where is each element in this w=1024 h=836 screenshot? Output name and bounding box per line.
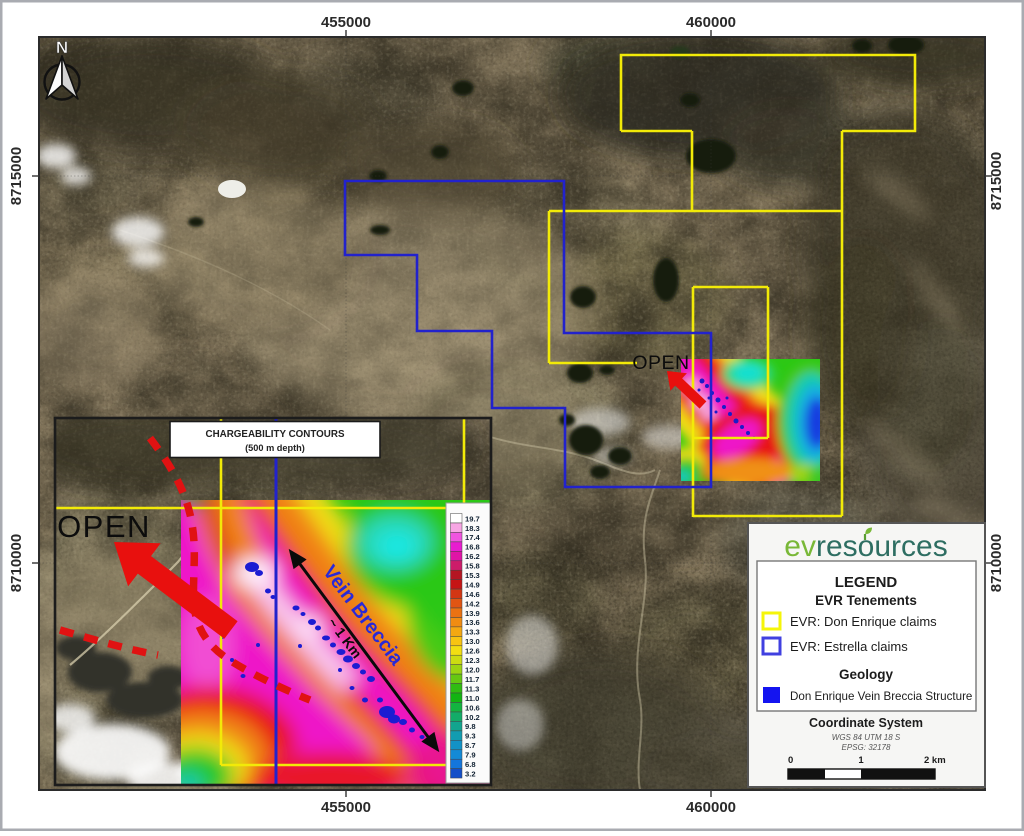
svg-text:CHARGEABILITY CONTOURS: CHARGEABILITY CONTOURS (206, 429, 345, 440)
svg-text:13.0: 13.0 (465, 637, 480, 646)
svg-text:13.3: 13.3 (465, 628, 480, 637)
svg-text:WGS 84 UTM 18 S: WGS 84 UTM 18 S (832, 733, 901, 742)
svg-text:14.2: 14.2 (465, 599, 480, 608)
svg-text:EVR Tenements: EVR Tenements (815, 593, 917, 608)
svg-text:10.6: 10.6 (465, 703, 480, 712)
svg-text:14.6: 14.6 (465, 590, 480, 599)
svg-text:8715000: 8715000 (8, 147, 25, 205)
svg-text:0: 0 (788, 755, 793, 766)
svg-text:N: N (56, 38, 68, 57)
svg-text:16.8: 16.8 (465, 543, 480, 552)
svg-text:(500 m depth): (500 m depth) (245, 443, 305, 453)
svg-text:14.9: 14.9 (465, 580, 480, 589)
svg-text:16.2: 16.2 (465, 552, 480, 561)
svg-text:11.3: 11.3 (465, 684, 479, 693)
svg-text:OPEN: OPEN (57, 509, 151, 544)
svg-text:455000: 455000 (321, 14, 371, 31)
svg-text:6.8: 6.8 (465, 760, 476, 769)
svg-text:Coordinate System: Coordinate System (809, 716, 923, 730)
svg-text:8.7: 8.7 (465, 741, 476, 750)
svg-text:9.8: 9.8 (465, 722, 476, 731)
svg-text:19.7: 19.7 (465, 514, 480, 523)
svg-text:EVR: Don Enrique claims: EVR: Don Enrique claims (790, 614, 937, 629)
svg-text:8710000: 8710000 (988, 534, 1005, 592)
svg-text:18.3: 18.3 (465, 524, 480, 533)
svg-text:2 km: 2 km (924, 755, 946, 766)
svg-text:12.3: 12.3 (465, 656, 480, 665)
svg-text:9.3: 9.3 (465, 732, 476, 741)
svg-text:OPEN: OPEN (632, 352, 689, 374)
svg-text:12.6: 12.6 (465, 647, 480, 656)
svg-text:8710000: 8710000 (8, 534, 25, 592)
svg-text:7.9: 7.9 (465, 751, 476, 760)
svg-text:11.7: 11.7 (465, 675, 479, 684)
svg-text:1: 1 (858, 755, 864, 766)
svg-text:8715000: 8715000 (988, 152, 1005, 210)
svg-text:11.0: 11.0 (465, 694, 479, 703)
svg-text:Don Enrique Vein Breccia Struc: Don Enrique Vein Breccia Structure (790, 690, 972, 703)
svg-text:15.8: 15.8 (465, 562, 480, 571)
svg-text:EPSG: 32178: EPSG: 32178 (842, 743, 891, 752)
svg-text:13.6: 13.6 (465, 618, 480, 627)
svg-text:460000: 460000 (686, 799, 736, 816)
svg-text:13.9: 13.9 (465, 609, 480, 618)
svg-text:460000: 460000 (686, 14, 736, 31)
svg-text:3.2: 3.2 (465, 769, 476, 778)
svg-text:LEGEND: LEGEND (835, 574, 898, 591)
svg-text:17.4: 17.4 (465, 533, 481, 542)
svg-text:EVR: Estrella claims: EVR: Estrella claims (790, 639, 908, 654)
svg-text:15.3: 15.3 (465, 571, 480, 580)
svg-text:455000: 455000 (321, 799, 371, 816)
svg-text:Geology: Geology (839, 667, 893, 682)
svg-text:10.2: 10.2 (465, 713, 480, 722)
svg-text:12.0: 12.0 (465, 666, 480, 675)
